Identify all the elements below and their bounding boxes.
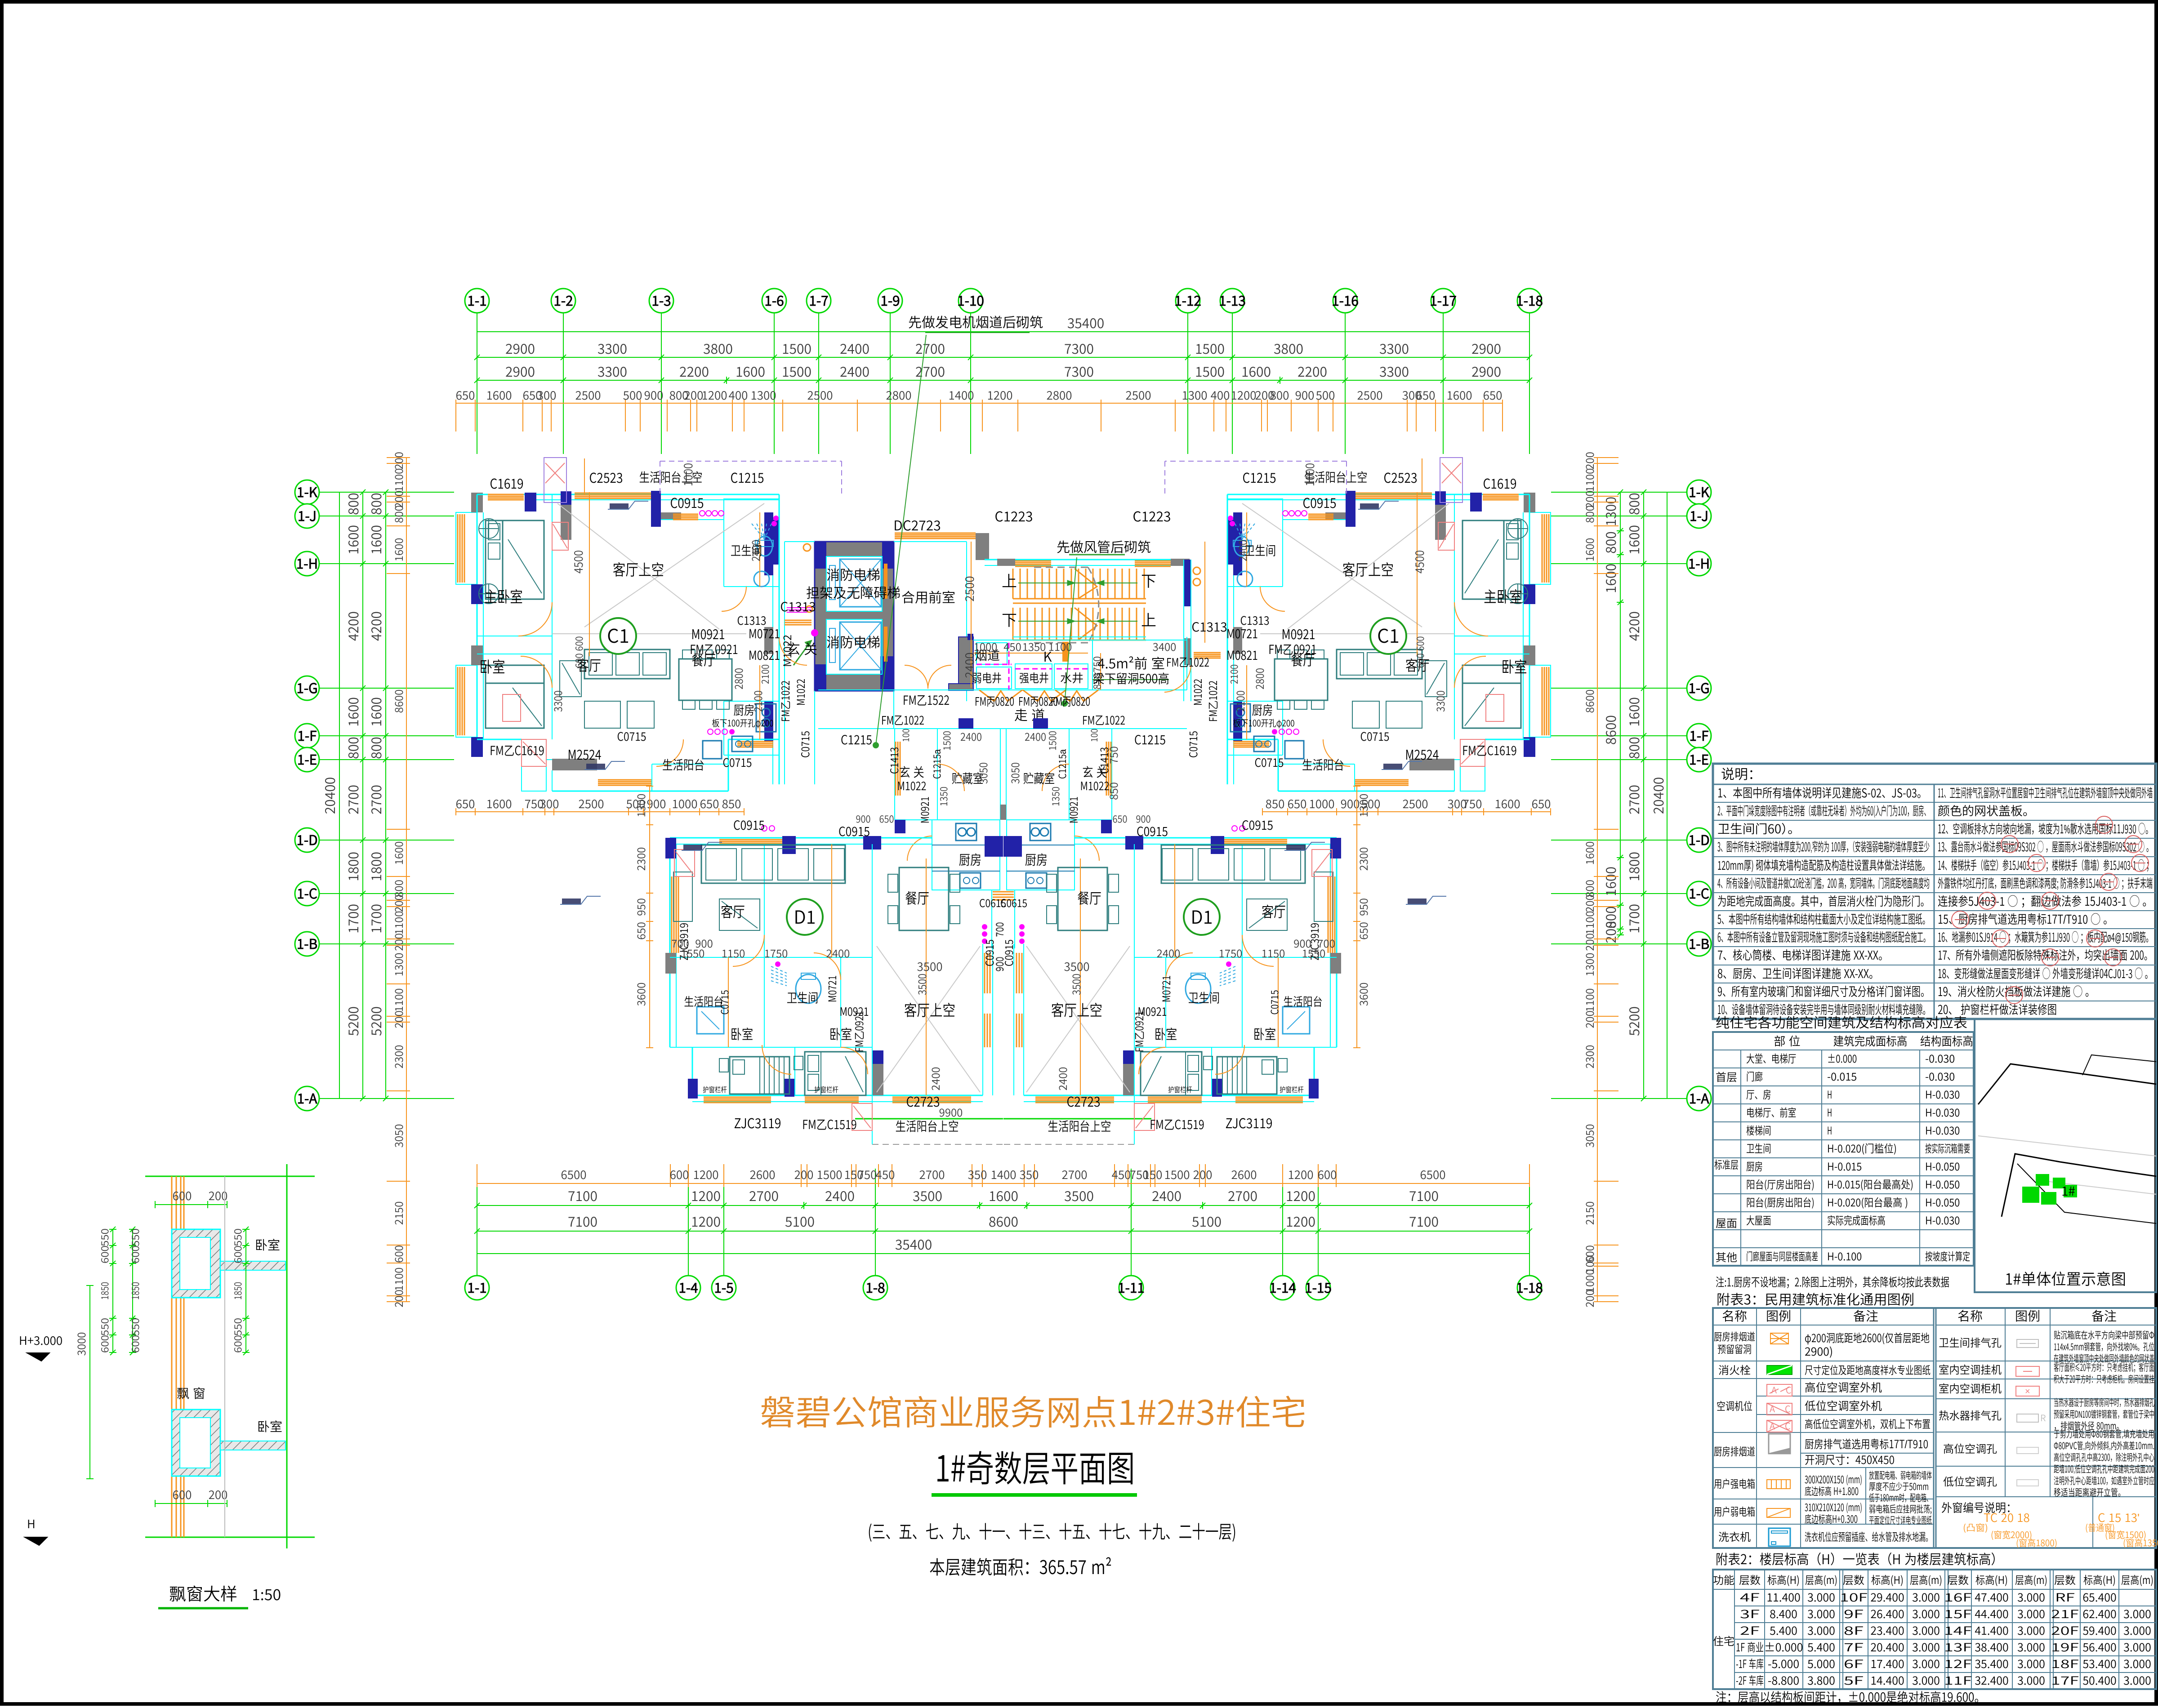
svg-text:3.000: 3.000	[1912, 1672, 1940, 1688]
svg-text:卧室: 卧室	[731, 1023, 753, 1043]
svg-text:3.000: 3.000	[1912, 1622, 1940, 1638]
svg-text:2400: 2400	[1234, 540, 1250, 561]
svg-text:其他: 其他	[1716, 1249, 1737, 1264]
svg-text:卧室: 卧室	[1501, 655, 1527, 677]
svg-text:客厅上空: 客厅上空	[904, 998, 955, 1020]
svg-text:开洞尺寸：450X450: 开洞尺寸：450X450	[1805, 1451, 1895, 1468]
svg-text:3.000: 3.000	[2123, 1622, 2151, 1638]
svg-text:室内空调挂机: 室内空调挂机	[1939, 1361, 2002, 1377]
svg-text:1200: 1200	[691, 1211, 721, 1231]
svg-text:120mm厚) 砌体填充墙构造配筋及构造柱设置具体做法详结施: 120mm厚) 砌体填充墙构造配筋及构造柱设置具体做法详结施。	[1717, 856, 1930, 873]
svg-text:M1022: M1022	[779, 635, 794, 667]
svg-text:2700: 2700	[366, 785, 385, 814]
svg-text:D1: D1	[1190, 903, 1213, 929]
svg-text:14.400: 14.400	[1870, 1672, 1904, 1688]
svg-text:H-0.030: H-0.030	[1925, 1122, 1960, 1138]
svg-text:1300: 1300	[633, 794, 648, 818]
svg-text:6500: 6500	[1420, 1166, 1445, 1183]
svg-text:650: 650	[1113, 811, 1128, 826]
svg-text:1-5: 1-5	[714, 1277, 733, 1297]
svg-text:消火栓: 消火栓	[1718, 1361, 1751, 1377]
svg-text:11、卫生间排气孔留洞水平位置居窗中卫生间排气孔位在建筑外墙: 11、卫生间排气孔留洞水平位置居窗中卫生间排气孔位在建筑外墙窗顶中央处做同外墙	[1938, 783, 2153, 801]
svg-text:500: 500	[1316, 387, 1335, 403]
svg-text:200: 200	[1581, 933, 1597, 951]
svg-text:1-K: 1-K	[1689, 481, 1710, 501]
svg-text:350: 350	[968, 1166, 987, 1183]
svg-text:C: C	[1785, 1402, 1791, 1415]
svg-text:首层: 首层	[1716, 1068, 1737, 1084]
svg-text:1200: 1200	[1231, 387, 1256, 403]
svg-text:1000: 1000	[1301, 463, 1318, 486]
svg-text:200: 200	[684, 387, 704, 403]
svg-text:护窗栏杆: 护窗栏杆	[1168, 1084, 1192, 1094]
svg-text:2500: 2500	[1402, 795, 1428, 812]
svg-text:450: 450	[876, 1166, 895, 1183]
svg-text:8.400: 8.400	[1770, 1606, 1797, 1622]
svg-text:结构面标高: 结构面标高	[1920, 1032, 1973, 1049]
svg-text:厨房: 厨房	[1025, 849, 1048, 869]
svg-text:M1022: M1022	[1189, 679, 1205, 706]
svg-text:板下100开孔φ200: 板下100开孔φ200	[1233, 716, 1294, 729]
svg-text:3、图中所有未注明的墙体厚度为200,窄的为 100厚，（安: 3、图中所有未注明的墙体厚度为200,窄的为 100厚，（安装强弱电箱的墙体厚度…	[1717, 837, 1930, 855]
svg-text:1-13: 1-13	[1219, 290, 1246, 310]
svg-text:1-A: 1-A	[297, 1088, 318, 1108]
svg-text:1600: 1600	[390, 538, 406, 562]
svg-text:1100: 1100	[390, 911, 406, 935]
svg-text:1-18: 1-18	[1516, 290, 1543, 310]
svg-text:客厅上空: 客厅上空	[613, 558, 664, 580]
svg-text:550: 550	[97, 1228, 111, 1246]
svg-text:厨房: 厨房	[959, 849, 981, 869]
svg-text:800: 800	[1623, 737, 1643, 759]
svg-text:2400: 2400	[826, 945, 850, 961]
svg-text:层高(m): 层高(m)	[2121, 1571, 2154, 1587]
svg-text:门廊屋面与同层楼面高差: 门廊屋面与同层楼面高差	[1746, 1248, 1818, 1263]
svg-text:层数: 层数	[1739, 1571, 1761, 1587]
svg-text:900: 900	[856, 811, 871, 826]
svg-text:ZJC3119: ZJC3119	[1226, 1112, 1273, 1132]
svg-text:客厅: 客厅	[721, 901, 745, 921]
svg-text:M2524: M2524	[1405, 744, 1439, 764]
svg-text:1600: 1600	[486, 795, 512, 812]
svg-text:2400: 2400	[961, 652, 977, 678]
svg-text:1800: 1800	[366, 852, 385, 881]
svg-text:积大于20平方时：只考虑柜机。房间设置挂: 积大于20平方时：只考虑柜机。房间设置挂	[2054, 1372, 2154, 1386]
svg-text:主卧室: 主卧室	[484, 585, 523, 607]
svg-text:1-8: 1-8	[865, 1277, 885, 1297]
svg-text:5200: 5200	[1623, 1006, 1643, 1036]
svg-text:C1313: C1313	[1240, 612, 1270, 628]
svg-text:M0721: M0721	[824, 975, 839, 1002]
svg-text:300: 300	[540, 795, 559, 812]
svg-text:200: 200	[1581, 1290, 1597, 1308]
svg-text:FM乙1022: FM乙1022	[1166, 654, 1209, 670]
svg-text:1-14: 1-14	[1269, 1277, 1296, 1297]
svg-text:200: 200	[1581, 894, 1597, 912]
svg-text:C1313: C1313	[737, 612, 767, 628]
svg-text:3500: 3500	[917, 958, 942, 974]
svg-text:3.000: 3.000	[2017, 1672, 2045, 1688]
svg-text:下: 下	[1002, 608, 1017, 630]
svg-text:C1313: C1313	[780, 597, 816, 615]
svg-text:FM乙C1519: FM乙C1519	[1150, 1115, 1204, 1133]
svg-text:H-0.030: H-0.030	[1925, 1212, 1960, 1228]
svg-text:2800: 2800	[886, 387, 911, 403]
svg-text:1500: 1500	[782, 361, 811, 381]
svg-text:3.000: 3.000	[2123, 1639, 2151, 1655]
svg-text:1700: 1700	[343, 904, 362, 934]
svg-text:生活阳台: 生活阳台	[662, 756, 704, 774]
svg-text:C0715: C0715	[1267, 990, 1281, 1015]
svg-text:C1: C1	[607, 621, 629, 649]
svg-text:650: 650	[456, 795, 475, 812]
svg-text:4200: 4200	[366, 611, 385, 641]
svg-text:消防电梯: 消防电梯	[826, 564, 880, 584]
svg-text:1-D: 1-D	[1688, 829, 1709, 849]
svg-text:47.400: 47.400	[1975, 1589, 2008, 1605]
svg-text:600: 600	[230, 1245, 245, 1263]
svg-text:屋面: 屋面	[1716, 1214, 1737, 1230]
svg-text:M0921: M0921	[916, 796, 932, 823]
svg-text:先做风管后砌筑: 先做风管后砌筑	[1057, 536, 1151, 556]
svg-text:卫生间排气孔: 卫生间排气孔	[1939, 1334, 2002, 1350]
svg-text:600: 600	[173, 1187, 192, 1204]
svg-text:C2523: C2523	[589, 467, 623, 487]
svg-text:2100: 2100	[758, 664, 772, 684]
svg-text:担架及无障碍梯: 担架及无障碍梯	[806, 582, 901, 602]
svg-text:56.400: 56.400	[2082, 1639, 2116, 1655]
svg-text:14F: 14F	[1944, 1622, 1972, 1638]
svg-text:4F: 4F	[1740, 1589, 1760, 1605]
svg-text:底边标高 H+1.800: 底边标高 H+1.800	[1805, 1483, 1859, 1498]
svg-text:护窗栏杆: 护窗栏杆	[814, 1084, 838, 1094]
svg-text:750: 750	[1105, 746, 1121, 764]
svg-text:FM乙0921: FM乙0921	[1268, 640, 1317, 658]
svg-text:2700: 2700	[915, 338, 945, 358]
svg-text:H-0.030: H-0.030	[1925, 1086, 1960, 1102]
svg-text:楼梯间: 楼梯间	[1746, 1122, 1771, 1138]
svg-text:2700: 2700	[919, 1166, 945, 1183]
svg-text:5200: 5200	[366, 1006, 385, 1036]
svg-text:1100: 1100	[1581, 911, 1597, 935]
svg-text:7300: 7300	[1064, 361, 1094, 381]
svg-text:800: 800	[366, 737, 385, 759]
svg-text:20400: 20400	[319, 777, 339, 814]
svg-text:6500: 6500	[561, 1166, 586, 1183]
svg-text:C1215a: C1215a	[1055, 749, 1069, 779]
svg-text:(凸窗): (凸窗)	[1963, 1521, 1988, 1534]
svg-text:层数: 层数	[1947, 1571, 1969, 1587]
svg-text:功能: 功能	[1713, 1571, 1734, 1587]
svg-text:C0715: C0715	[723, 754, 752, 770]
svg-text:1800: 1800	[343, 852, 362, 881]
svg-text:1-17: 1-17	[1430, 290, 1457, 310]
svg-text:7100: 7100	[1409, 1211, 1439, 1231]
svg-text:C0915: C0915	[1242, 816, 1273, 834]
svg-text:150: 150	[1143, 1166, 1163, 1183]
svg-text:H-0.020(门槛位): H-0.020(门槛位)	[1827, 1140, 1897, 1156]
svg-text:1600: 1600	[366, 525, 385, 555]
svg-text:C2723: C2723	[906, 1091, 940, 1111]
svg-text:-1F 车库: -1F 车库	[1736, 1655, 1764, 1672]
svg-text:(窗高1800): (窗高1800)	[2016, 1536, 2057, 1549]
svg-text:1800: 1800	[1623, 852, 1643, 881]
svg-text:C0615: C0615	[1000, 894, 1027, 910]
svg-text:-5.000: -5.000	[1768, 1655, 1799, 1672]
svg-text:附表3：民用建筑标准化通用图例: 附表3：民用建筑标准化通用图例	[1717, 1289, 1914, 1308]
svg-text:层数: 层数	[2054, 1571, 2076, 1587]
svg-text:9、所有室内玻璃门和窗详细尺寸及分格详门窗详图。: 9、所有室内玻璃门和窗详细尺寸及分格详门窗详图。	[1717, 982, 1930, 1000]
svg-text:1-C: 1-C	[1689, 883, 1709, 903]
svg-text:3.800: 3.800	[1807, 1672, 1835, 1688]
svg-text:200: 200	[390, 894, 406, 912]
svg-text:1750: 1750	[1219, 945, 1243, 961]
svg-text:磐碧公馆商业服务网点1#2#3#住宅: 磐碧公馆商业服务网点1#2#3#住宅	[760, 1385, 1306, 1435]
svg-text:44.400: 44.400	[1975, 1606, 2008, 1622]
svg-text:1-9: 1-9	[880, 290, 900, 310]
svg-text:洗衣机位应预留插座、给水管及排水地漏。: 洗衣机位应预留插座、给水管及排水地漏。	[1805, 1528, 1932, 1544]
svg-text:200: 200	[1581, 452, 1597, 470]
svg-text:200: 200	[1193, 1166, 1213, 1183]
svg-text:高位空调室外机: 高位空调室外机	[1805, 1379, 1882, 1395]
svg-text:本层建筑面积：365.57 m²: 本层建筑面积：365.57 m²	[929, 1552, 1112, 1580]
svg-text:标准层: 标准层	[1714, 1156, 1739, 1172]
svg-text:1500: 1500	[939, 731, 954, 751]
svg-text:C0915: C0915	[733, 816, 765, 834]
svg-text:3.000: 3.000	[2123, 1606, 2151, 1622]
svg-text:5.000: 5.000	[1807, 1655, 1835, 1672]
svg-text:19、消火栓防火挡板做法详建施 ◯ 。: 19、消火栓防火挡板做法详建施 ◯ 。	[1938, 982, 2095, 1000]
svg-text:20.400: 20.400	[1870, 1639, 1904, 1655]
svg-text:1300: 1300	[390, 953, 406, 977]
svg-text:3300: 3300	[1432, 690, 1448, 712]
svg-text:卧室: 卧室	[1253, 1023, 1276, 1043]
svg-text:名称: 名称	[1957, 1307, 1983, 1325]
svg-text:9F: 9F	[1844, 1606, 1864, 1622]
svg-text:1200: 1200	[701, 387, 727, 403]
svg-text:2300: 2300	[633, 847, 648, 871]
svg-text:3.000: 3.000	[2017, 1622, 2045, 1638]
svg-text:1300: 1300	[1182, 387, 1207, 403]
svg-text:洗衣机: 洗衣机	[1718, 1528, 1751, 1544]
svg-text:3.000: 3.000	[2123, 1655, 2151, 1672]
svg-text:R: R	[2040, 1411, 2046, 1424]
svg-text:上: 上	[1002, 569, 1017, 591]
svg-text:×: ×	[2025, 1384, 2030, 1397]
svg-text:3600: 3600	[1355, 983, 1371, 1006]
svg-text:C: C	[1785, 1419, 1791, 1432]
svg-text:护窗栏杆: 护窗栏杆	[1280, 1084, 1304, 1094]
svg-text:2800: 2800	[1251, 668, 1267, 689]
svg-text:-0.030: -0.030	[1925, 1050, 1955, 1066]
svg-text:200: 200	[794, 1166, 814, 1183]
svg-text:2500: 2500	[578, 795, 604, 812]
svg-text:客厅上空: 客厅上空	[1051, 998, 1102, 1020]
svg-text:飘 窗: 飘 窗	[177, 1384, 205, 1402]
svg-text:1350: 1350	[936, 787, 950, 806]
svg-text:TC 20 18: TC 20 18	[1984, 1509, 2030, 1526]
svg-text:900: 900	[992, 957, 1006, 972]
svg-text:生活阳台上空: 生活阳台上空	[1048, 1117, 1111, 1135]
svg-text:1-10: 1-10	[957, 290, 984, 310]
svg-text:8600: 8600	[1600, 715, 1620, 745]
svg-text:FM乙1022: FM乙1022	[777, 681, 793, 722]
svg-text:1550: 1550	[1302, 945, 1326, 961]
svg-text:卫生间: 卫生间	[1188, 988, 1220, 1006]
svg-text:A: A	[1770, 1402, 1775, 1415]
svg-text:21F: 21F	[2051, 1606, 2079, 1622]
svg-text:600: 600	[571, 636, 586, 651]
svg-text:1350: 1350	[1048, 787, 1062, 806]
svg-text:餐厅: 餐厅	[905, 887, 929, 908]
svg-text:1600: 1600	[1623, 697, 1643, 727]
svg-text:C0715: C0715	[617, 728, 647, 744]
svg-text:1600: 1600	[1623, 525, 1643, 555]
svg-text:C2523: C2523	[1384, 467, 1418, 487]
svg-text:FM乙C1619: FM乙C1619	[1462, 741, 1517, 759]
svg-text:C0715: C0715	[1185, 731, 1200, 758]
svg-text:100: 100	[1087, 729, 1100, 742]
svg-text:2100: 2100	[1226, 664, 1241, 684]
svg-text:建筑完成面标高: 建筑完成面标高	[1833, 1032, 1908, 1049]
svg-text:650: 650	[700, 795, 719, 812]
svg-text:梁下留洞500高: 梁下留洞500高	[1093, 669, 1169, 687]
svg-text:1200: 1200	[1286, 1211, 1315, 1231]
svg-text:1100: 1100	[1581, 988, 1597, 1012]
svg-text:1600: 1600	[1241, 361, 1271, 381]
svg-text:1000: 1000	[1309, 795, 1334, 812]
svg-text:500: 500	[623, 387, 642, 403]
svg-text:1#: 1#	[2061, 1182, 2075, 1200]
svg-text:1-18: 1-18	[1516, 1277, 1543, 1297]
svg-text:1600: 1600	[343, 697, 362, 727]
svg-text:阳台(厨房出阳台): 阳台(厨房出阳台)	[1746, 1194, 1815, 1210]
svg-text:标高(H): 标高(H)	[1767, 1571, 1800, 1587]
svg-text:C1313: C1313	[1191, 618, 1227, 636]
svg-text:5.400: 5.400	[1770, 1622, 1797, 1638]
svg-text:5.400: 5.400	[1807, 1639, 1835, 1655]
svg-text:1300: 1300	[1600, 497, 1620, 526]
svg-text:2400: 2400	[825, 1185, 855, 1205]
svg-text:1600: 1600	[1494, 795, 1520, 812]
svg-text:C0715: C0715	[1255, 754, 1284, 770]
svg-text:C1215: C1215	[1243, 467, 1276, 487]
svg-text:50.400: 50.400	[2082, 1672, 2116, 1688]
svg-text:C0715: C0715	[717, 990, 731, 1015]
svg-text:900: 900	[1136, 811, 1151, 826]
svg-text:17、所有外墙侧遮阳板除特殊标注外，均突出墙面 200。: 17、所有外墙侧遮阳板除特殊标注外，均突出墙面 200。	[1938, 946, 2153, 963]
svg-text:3.000: 3.000	[1807, 1622, 1835, 1638]
svg-text:3F: 3F	[1740, 1606, 1760, 1622]
svg-text:预留留洞: 预留留洞	[1717, 1341, 1752, 1356]
svg-text:6F: 6F	[1844, 1655, 1864, 1672]
svg-text:2200: 2200	[679, 361, 709, 381]
svg-text:2700: 2700	[749, 1185, 779, 1205]
svg-text:注：层高以结构板间距计，±0.000是绝对标高19.600。: 注：层高以结构板间距计，±0.000是绝对标高19.600。	[1716, 1688, 1985, 1706]
svg-text:1000: 1000	[679, 463, 696, 486]
svg-text:1-12: 1-12	[1174, 290, 1201, 310]
svg-text:C1215: C1215	[1134, 730, 1166, 748]
svg-text:300: 300	[1448, 795, 1467, 812]
svg-text:阳台(厅房出阳台): 阳台(厅房出阳台)	[1746, 1176, 1815, 1192]
svg-text:-2F 车库: -2F 车库	[1736, 1672, 1764, 1688]
svg-text:按坡度计算定: 按坡度计算定	[1925, 1248, 1970, 1263]
svg-text:2700: 2700	[343, 785, 362, 814]
svg-text:强电井: 强电井	[1019, 669, 1049, 686]
svg-text:说明：: 说明：	[1721, 763, 1761, 783]
svg-text:2、平面中门垛宽度除图中有注明者（或靠柱无垛者）外均为60(: 2、平面中门垛宽度除图中有注明者（或靠柱无垛者）外均为60(入户门为100，厨房…	[1717, 801, 1930, 819]
svg-text:1100: 1100	[390, 988, 406, 1012]
svg-text:电梯厅、前室: 电梯厅、前室	[1746, 1104, 1796, 1120]
svg-text:3400: 3400	[1153, 638, 1177, 654]
svg-text:2800: 2800	[730, 668, 746, 689]
svg-text:550: 550	[230, 1228, 245, 1246]
svg-text:纯住宅各功能空间建筑及结构标高对应表: 纯住宅各功能空间建筑及结构标高对应表	[1716, 1012, 1967, 1032]
svg-text:C1223: C1223	[1133, 506, 1171, 525]
svg-text:600: 600	[128, 1335, 142, 1353]
svg-text:±0.000: ±0.000	[1764, 1639, 1803, 1655]
svg-text:5、本图中所有结构墙体和结构柱截面大小及定位详结构施工图纸。: 5、本图中所有结构墙体和结构柱截面大小及定位详结构施工图纸。	[1717, 910, 1930, 927]
svg-text:600: 600	[97, 1335, 111, 1353]
svg-text:H-0.050: H-0.050	[1925, 1194, 1960, 1210]
svg-text:2500: 2500	[807, 387, 833, 403]
svg-text:12、空调板排水方向坡向地漏，坡度为1%散水选用国标11J9: 12、空调板排水方向坡向地漏，坡度为1%散水选用国标11J930 ◯。	[1938, 819, 2153, 837]
svg-text:2400: 2400	[1157, 945, 1181, 961]
svg-text:38.400: 38.400	[1975, 1639, 2008, 1655]
svg-text:3.000: 3.000	[2017, 1655, 2045, 1672]
svg-text:1-D: 1-D	[296, 829, 317, 849]
svg-text:3300: 3300	[597, 361, 627, 381]
svg-text:1600: 1600	[989, 1185, 1018, 1205]
svg-text:1200: 1200	[1286, 1185, 1315, 1205]
svg-text:H-0.015(阳台最高处): H-0.015(阳台最高处)	[1827, 1176, 1913, 1192]
svg-text:消防电梯: 消防电梯	[826, 632, 880, 651]
svg-text:M0921: M0921	[1065, 796, 1081, 823]
svg-text:C2723: C2723	[1067, 1091, 1101, 1111]
svg-text:450: 450	[1112, 1166, 1131, 1183]
svg-text:7F: 7F	[1844, 1639, 1864, 1655]
svg-text:400: 400	[729, 387, 748, 403]
svg-text:1600: 1600	[366, 697, 385, 727]
svg-text:900: 900	[1295, 387, 1315, 403]
svg-text:8600: 8600	[390, 689, 406, 713]
svg-text:D1: D1	[794, 903, 816, 929]
svg-text:2400: 2400	[927, 1067, 943, 1091]
svg-text:2700: 2700	[1228, 1185, 1257, 1205]
svg-text:1-2: 1-2	[553, 290, 573, 310]
svg-text:室内空调柜机: 室内空调柜机	[1939, 1380, 2002, 1396]
svg-text:M2524: M2524	[568, 744, 602, 764]
svg-text:200: 200	[390, 452, 406, 470]
svg-text:2500: 2500	[575, 387, 601, 403]
svg-text:18、变形缝做法屋面变形缝详 ◯ 外墙变形缝详04CJ01-: 18、变形缝做法屋面变形缝详 ◯ 外墙变形缝详04CJ01-3 ◯ 。	[1938, 964, 2153, 982]
svg-text:1350: 1350	[1022, 638, 1046, 654]
svg-text:3.000: 3.000	[2123, 1672, 2151, 1688]
svg-text:H: H	[27, 1515, 36, 1532]
svg-text:2300: 2300	[390, 1045, 406, 1069]
svg-text:护窗栏杆: 护窗栏杆	[703, 1084, 727, 1094]
svg-text:名称: 名称	[1722, 1307, 1747, 1325]
svg-text:800: 800	[366, 493, 385, 515]
svg-text:35400: 35400	[1067, 312, 1104, 332]
svg-text:颜色的网状盖板。: 颜色的网状盖板。	[1938, 801, 2035, 819]
svg-text:1-F: 1-F	[297, 725, 317, 745]
svg-text:1300: 1300	[1581, 953, 1597, 977]
svg-text:1-E: 1-E	[1689, 749, 1709, 769]
svg-text:1-H: 1-H	[1688, 553, 1710, 573]
svg-text:FM乙0921: FM乙0921	[1131, 1011, 1146, 1052]
svg-text:A: A	[1770, 1419, 1775, 1432]
